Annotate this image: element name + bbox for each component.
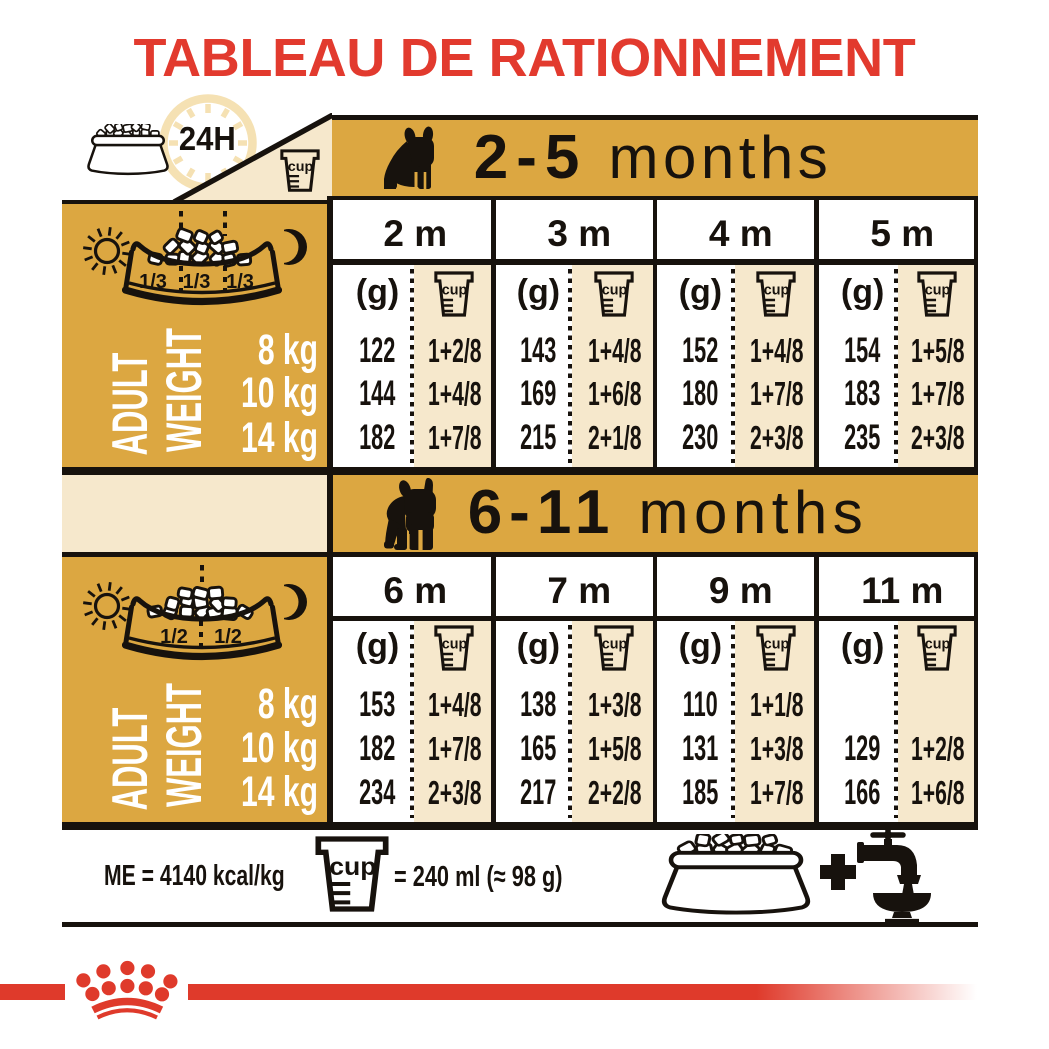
svg-text:cup: cup [329, 854, 376, 881]
svg-text:cup: cup [764, 282, 789, 298]
svg-text:cup: cup [925, 636, 950, 652]
svg-text:cup: cup [288, 159, 314, 175]
svg-text:1/2: 1/2 [214, 626, 242, 648]
svg-text:cup: cup [925, 282, 950, 298]
svg-text:cup: cup [602, 636, 627, 652]
svg-text:1/3: 1/3 [183, 271, 211, 293]
svg-text:cup: cup [442, 282, 467, 298]
svg-text:1/2: 1/2 [160, 626, 188, 648]
svg-text:cup: cup [764, 636, 789, 652]
svg-text:cup: cup [602, 282, 627, 298]
svg-text:cup: cup [442, 636, 467, 652]
svg-text:1/3: 1/3 [139, 271, 167, 293]
svg-text:1/3: 1/3 [226, 271, 254, 293]
